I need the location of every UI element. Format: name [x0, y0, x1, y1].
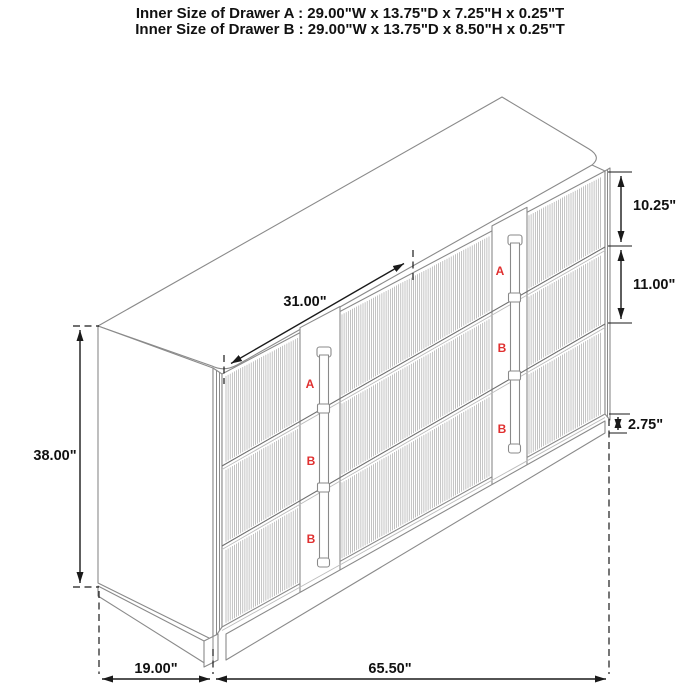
front-corner-column [213, 368, 222, 640]
dimension-drawer-b-height: 11.00" [608, 250, 675, 323]
drawer-label-a-left: A [306, 377, 315, 391]
drawer-label-a-right: A [496, 264, 505, 278]
dimension-text-31: 31.00" [283, 294, 326, 310]
top-slab-corner [592, 165, 605, 171]
dimension-text-1900: 19.00" [134, 661, 177, 677]
dimension-text-275: 2.75" [628, 417, 663, 433]
handle-right [508, 235, 522, 453]
sideboard-drawing: A B B A B B [98, 97, 610, 667]
dimension-text-6550: 65.50" [368, 661, 411, 677]
dimension-overall-width: 65.50" [216, 661, 606, 679]
drawer-label-b-right-bottom: B [498, 422, 507, 436]
dimension-drawer-a-height: 10.25" [608, 172, 676, 246]
dimension-depth: 19.00" [102, 661, 210, 679]
dimension-base-height: 2.75" [609, 414, 663, 433]
dimension-text-1100: 11.00" [633, 277, 675, 293]
handle-left [317, 347, 331, 567]
cabinet-left-panel [98, 326, 213, 640]
dimension-overall-height: 38.00" [33, 326, 99, 587]
product-dimension-diagram: Inner Size of Drawer A : 29.00"W x 13.75… [0, 0, 700, 700]
dimension-text-1025: 10.25" [633, 198, 676, 214]
drawer-label-b-right-middle: B [498, 341, 507, 355]
drawer-label-b-left-middle: B [307, 454, 316, 468]
drawer-label-b-left-bottom: B [307, 532, 316, 546]
dimension-text-38: 38.00" [33, 448, 76, 464]
